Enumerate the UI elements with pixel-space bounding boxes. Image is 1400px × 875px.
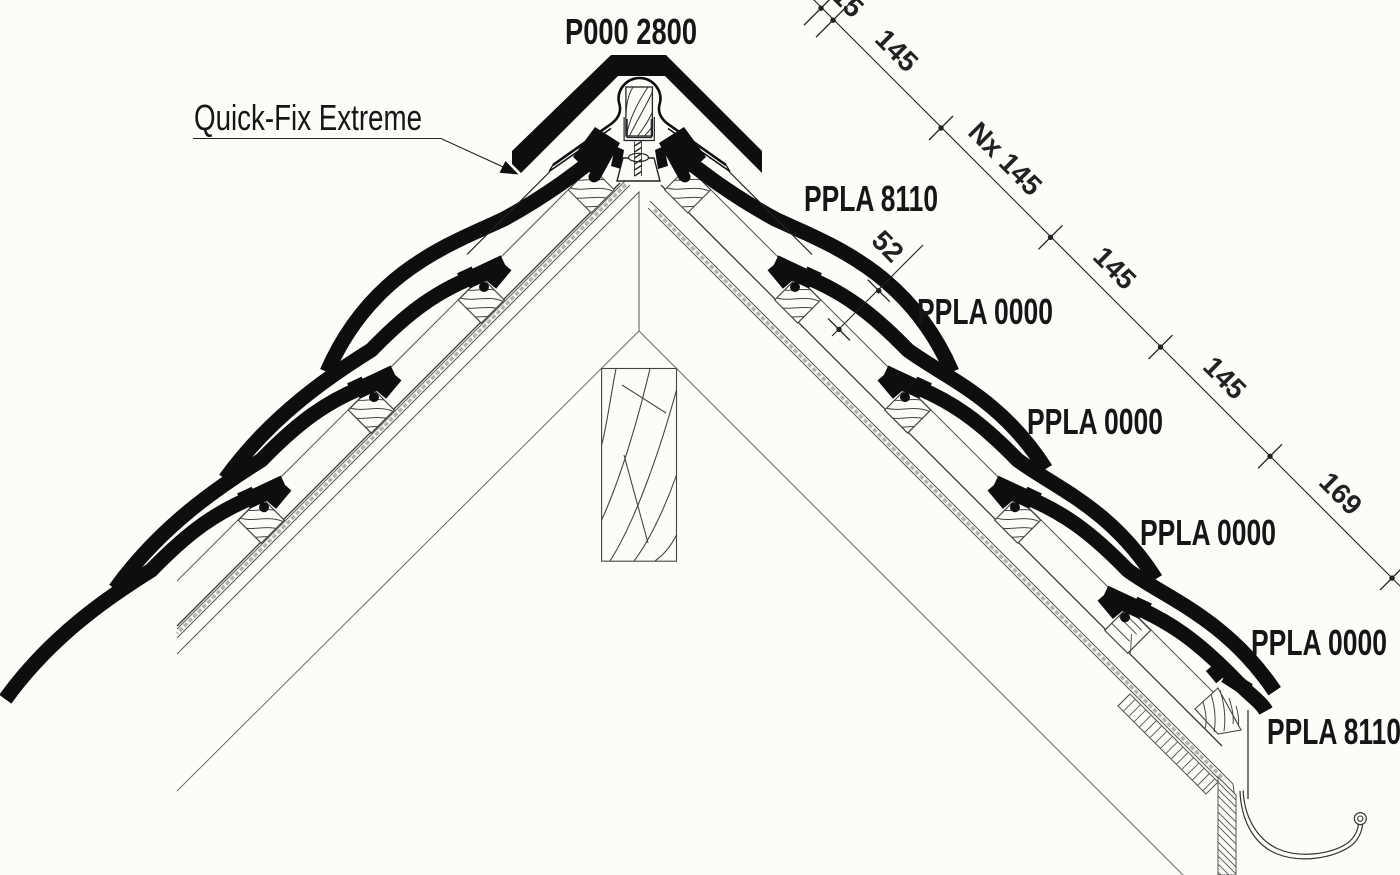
svg-text:PPLA 0000: PPLA 0000 xyxy=(1251,622,1387,663)
svg-text:PPLA 8110: PPLA 8110 xyxy=(1267,711,1400,752)
svg-text:Quick-Fix Extreme: Quick-Fix Extreme xyxy=(194,97,422,138)
svg-text:PPLA 0000: PPLA 0000 xyxy=(917,291,1053,332)
svg-text:P000 2800: P000 2800 xyxy=(565,11,697,52)
svg-text:PPLA 0000: PPLA 0000 xyxy=(1140,512,1276,553)
svg-text:PPLA 0000: PPLA 0000 xyxy=(1027,401,1163,442)
svg-text:PPLA 8110: PPLA 8110 xyxy=(804,178,938,219)
